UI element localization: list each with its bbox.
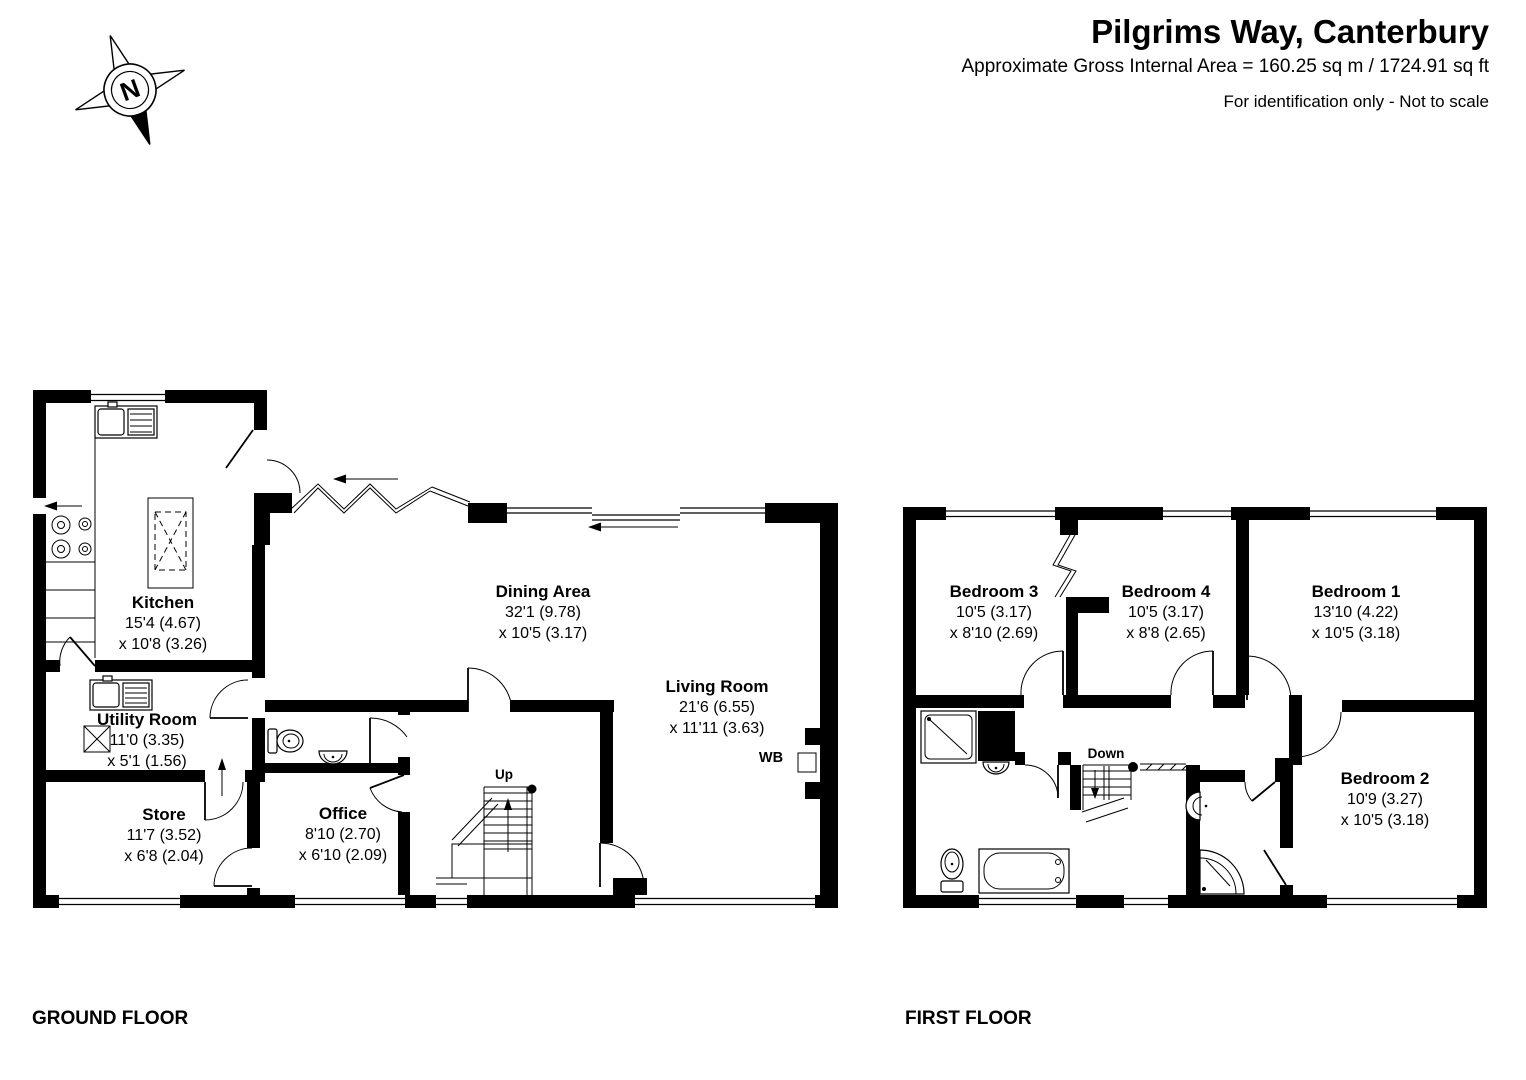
gross-area-subtitle: Approximate Gross Internal Area = 160.25… [961,56,1489,78]
room-label-kitchen: Kitchen 15'4 (4.67) x 10'8 (3.26) [83,592,243,655]
office-dim2: x 6'10 (2.09) [263,845,423,866]
store-dim2: x 6'8 (2.04) [84,846,244,867]
utility-dim1: 11'0 (3.35) [67,730,227,751]
bifold-door [291,475,470,514]
kitchen-island [148,498,193,588]
bedroom4-dim1: 10'5 (3.17) [1086,602,1246,623]
first-floor-plan [903,505,1487,910]
room-label-bedroom1: Bedroom 1 13'10 (4.22) x 10'5 (3.18) [1276,581,1436,644]
bedroom4-name: Bedroom 4 [1086,581,1246,602]
wc-toilet-icon [268,729,303,753]
bedroom2-dim2: x 10'5 (3.18) [1305,810,1465,831]
utility-dim2: x 5'1 (1.56) [67,751,227,772]
page-title: Pilgrims Way, Canterbury [961,14,1489,50]
office-dim1: 8'10 (2.70) [263,824,423,845]
kitchen-dim2: x 10'8 (3.26) [83,634,243,655]
kitchen-sink-icon [95,402,157,438]
bedroom2-name: Bedroom 2 [1305,768,1465,789]
header: Pilgrims Way, Canterbury Approximate Gro… [961,14,1489,112]
utility-name: Utility Room [67,709,227,730]
stairs-up-label: Up [482,767,526,782]
bedroom1-dim1: 13'10 (4.22) [1276,602,1436,623]
room-label-living: Living Room 21'6 (6.55) x 11'11 (3.63) [637,676,797,739]
room-label-bedroom4: Bedroom 4 10'5 (3.17) x 8'8 (2.65) [1086,581,1246,644]
ensuite-basin-icon [1186,792,1207,820]
first-floor-title: FIRST FLOOR [905,1008,1032,1030]
stairs-down-label: Down [1076,746,1136,761]
room-label-dining: Dining Area 32'1 (9.78) x 10'5 (3.17) [463,581,623,644]
bathroom-toilet-icon [941,849,963,892]
bedroom3-dim2: x 8'10 (2.69) [914,623,1074,644]
wood-burner-icon [798,753,816,772]
sliding-door-arrow-icon [588,523,678,532]
bathroom-basin-icon [983,762,1009,774]
extractor-vent-arrow-icon [44,502,82,511]
bedroom1-name: Bedroom 1 [1276,581,1436,602]
living-dim1: 21'6 (6.55) [637,697,797,718]
bathroom-shower-icon [921,711,976,763]
landing-balustrade [1140,764,1186,770]
ensuite-shower-icon [1200,850,1244,894]
floorplan-page: Pilgrims Way, Canterbury Approximate Gro… [0,0,1526,1080]
hob-icon [52,516,91,558]
kitchen-name: Kitchen [83,592,243,613]
dining-name: Dining Area [463,581,623,602]
entrance-step [436,878,467,884]
bedroom2-dim1: 10'9 (3.27) [1305,789,1465,810]
store-name: Store [84,804,244,825]
dining-dim1: 32'1 (9.78) [463,602,623,623]
disclaimer-note: For identification only - Not to scale [961,92,1489,112]
kitchen-dim1: 15'4 (4.67) [83,613,243,634]
ground-floor-title: GROUND FLOOR [32,1008,188,1030]
room-label-bedroom2: Bedroom 2 10'9 (3.27) x 10'5 (3.18) [1305,768,1465,831]
wc-basin-icon [319,751,347,764]
wood-burner-label: WB [751,750,791,766]
room-label-office: Office 8'10 (2.70) x 6'10 (2.09) [263,803,423,866]
room-label-store: Store 11'7 (3.52) x 6'8 (2.04) [84,804,244,867]
living-dim2: x 11'11 (3.63) [637,718,797,739]
bedroom1-dim2: x 10'5 (3.18) [1276,623,1436,644]
first-stairs [1082,762,1138,822]
utility-sink-icon [90,676,152,710]
office-name: Office [263,803,423,824]
living-name: Living Room [637,676,797,697]
room-label-bedroom3: Bedroom 3 10'5 (3.17) x 8'10 (2.69) [914,581,1074,644]
bedroom3-name: Bedroom 3 [914,581,1074,602]
store-dim1: 11'7 (3.52) [84,825,244,846]
dining-dim2: x 10'5 (3.17) [463,623,623,644]
first-walls [903,507,1487,908]
room-label-utility: Utility Room 11'0 (3.35) x 5'1 (1.56) [67,709,227,772]
bedroom4-dim2: x 8'8 (2.65) [1086,623,1246,644]
compass-north-icon: N [58,12,203,157]
bedroom3-dim1: 10'5 (3.17) [914,602,1074,623]
bath-icon [979,849,1069,893]
